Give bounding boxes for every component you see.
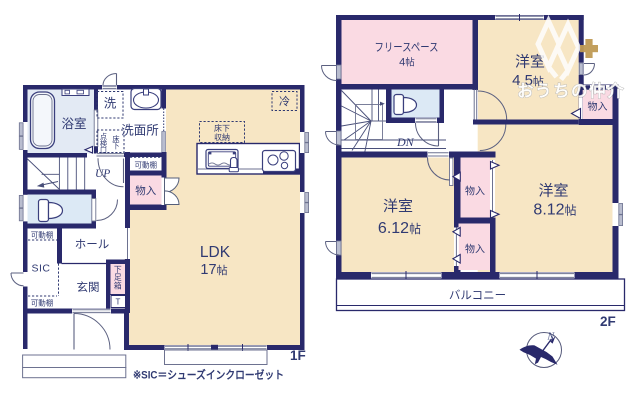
svg-text:点検口: 点検口: [100, 132, 108, 155]
svg-text:LDK: LDK: [200, 244, 231, 261]
svg-text:DN: DN: [396, 135, 415, 149]
svg-text:N: N: [547, 332, 556, 343]
svg-text:可動棚: 可動棚: [31, 230, 54, 240]
svg-text:物入: 物入: [135, 184, 156, 197]
svg-text:可動棚: 可動棚: [135, 160, 158, 170]
svg-text:浴室: 浴室: [61, 116, 86, 131]
svg-text:洋室: 洋室: [383, 198, 413, 215]
svg-text:洋室: 洋室: [538, 183, 568, 200]
svg-text:SIC: SIC: [31, 263, 50, 275]
svg-text:物入: 物入: [465, 185, 485, 198]
svg-text:洗面所: 洗面所: [121, 124, 159, 138]
svg-text:物入: 物入: [588, 100, 608, 113]
svg-text:1F: 1F: [290, 348, 306, 363]
svg-text:床下: 床下: [112, 135, 119, 151]
svg-text:バルコニー: バルコニー: [449, 289, 506, 302]
svg-text:玄関: 玄関: [77, 280, 100, 294]
svg-text:4帖: 4帖: [399, 57, 415, 69]
svg-text:床下: 床下: [214, 123, 230, 133]
svg-text:おうちの仲介: おうちの仲介: [517, 81, 625, 101]
svg-text:可動棚: 可動棚: [31, 298, 54, 308]
svg-text:2F: 2F: [600, 314, 616, 329]
svg-text:17帖: 17帖: [200, 262, 227, 278]
svg-text:洋室: 洋室: [515, 54, 545, 71]
svg-text:冷: 冷: [279, 95, 290, 108]
svg-text:※SIC＝シューズインクローゼット: ※SIC＝シューズインクローゼット: [133, 368, 284, 382]
svg-text:物入: 物入: [465, 243, 485, 256]
svg-text:T: T: [116, 298, 121, 307]
svg-text:洗: 洗: [104, 97, 117, 111]
svg-text:ホール: ホール: [75, 238, 110, 251]
svg-text:下足箱: 下足箱: [114, 265, 122, 290]
svg-text:6.12帖: 6.12帖: [378, 220, 421, 237]
svg-text:8.12帖: 8.12帖: [533, 202, 576, 219]
svg-text:収納: 収納: [214, 132, 230, 142]
svg-text:フリースペース: フリースペース: [375, 42, 439, 54]
